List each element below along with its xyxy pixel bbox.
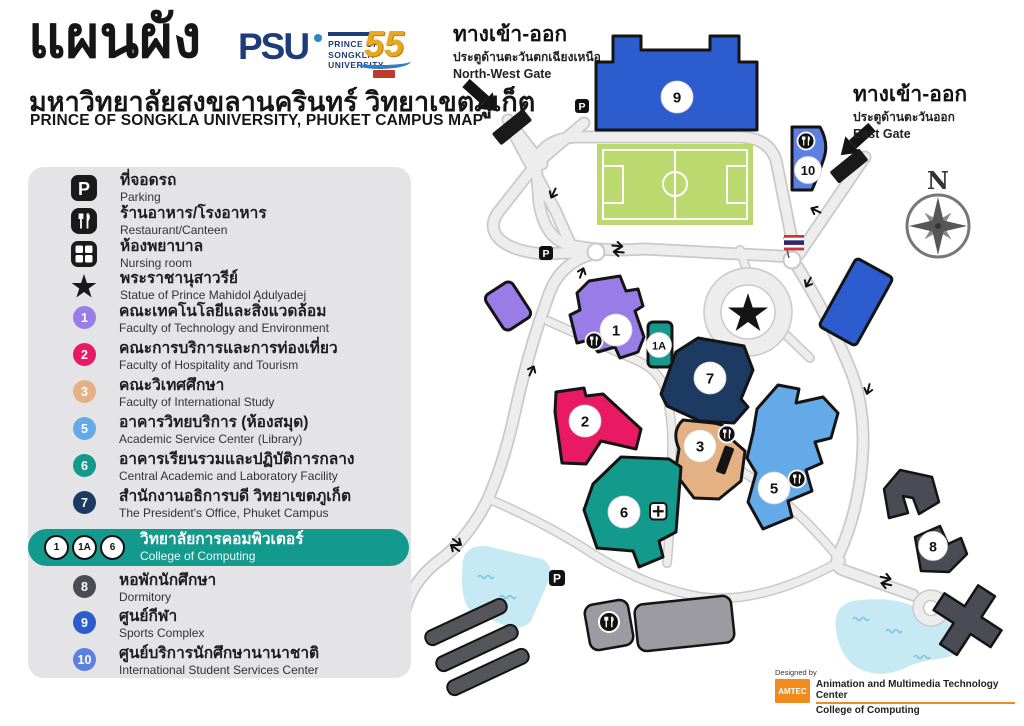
- svg-text:7: 7: [706, 371, 714, 388]
- amtec-logo: AMTEC: [775, 679, 810, 703]
- map-marker-6: 6: [608, 496, 640, 528]
- parking-icon: P: [549, 570, 565, 586]
- restaurant-icon: [789, 471, 806, 488]
- legend-marker-7: 7: [73, 491, 96, 514]
- svg-text:1: 1: [612, 323, 620, 340]
- legend-item-7: 7 สำนักงานอธิการบดี วิทยาเขตภูเก็ตThe Pr…: [28, 491, 351, 520]
- svg-text:6: 6: [620, 505, 628, 522]
- svg-text:P: P: [553, 572, 561, 586]
- nursing-icon: [650, 503, 667, 520]
- restaurant-icon: [586, 333, 603, 350]
- svg-text:1A: 1A: [652, 341, 666, 353]
- map-marker-7: 7: [694, 362, 726, 394]
- legend-item-statue: พระราชานุสาวรีย์Statue of Prince Mahidol…: [28, 273, 306, 302]
- parking-icon: P: [71, 175, 97, 201]
- map-marker-1a: 1A: [647, 333, 672, 358]
- legend-marker-1: 1: [73, 306, 96, 329]
- compass-rose: N: [907, 166, 969, 257]
- football-field: [597, 144, 753, 225]
- subtitle-english: PRINCE OF SONGKLA UNIVERSITY, PHUKET CAM…: [30, 112, 483, 130]
- legend-item-5: 5 อาคารวิทยบริการ (ห้องสมุด)Academic Ser…: [28, 417, 308, 446]
- svg-text:5: 5: [770, 481, 778, 498]
- legend-item-3: 3 คณะวิเทศศึกษาFaculty of International …: [28, 380, 274, 409]
- legend-item-6: 6 อาคารเรียนรวมและปฏิบัติการกลางCentral …: [28, 454, 355, 483]
- page-title: แผนผัง: [28, 6, 201, 70]
- svg-text:P: P: [578, 101, 585, 113]
- legend-marker-6: 6: [73, 454, 96, 477]
- map-marker-2: 2: [569, 405, 601, 437]
- anniversary-55-logo: 55: [352, 28, 416, 78]
- legend-marker-6-highlight: 6: [100, 535, 125, 560]
- legend-item-college-of-computing: 1 1A 6 วิทยาลัยการคอมพิวเตอร์College of …: [28, 529, 409, 566]
- map-marker-10: 10: [795, 157, 822, 184]
- legend-item-8: 8 หอพักนักศึกษาDormitory: [28, 575, 216, 604]
- blue-annex-building: [819, 258, 894, 347]
- restaurant-icon: [719, 426, 736, 443]
- parking-icon: P: [539, 246, 553, 260]
- legend-marker-3: 3: [73, 380, 96, 403]
- svg-text:P: P: [78, 179, 90, 199]
- restaurant-icon: [71, 208, 97, 234]
- legend-item-restaurant: ร้านอาหาร/โรงอาหารRestaurant/Canteen: [28, 208, 267, 237]
- credits: Designed by AMTEC Animation and Multimed…: [775, 668, 1015, 716]
- legend-item-nursing: ห้องพยาบาลNursing room: [28, 241, 203, 270]
- nursing-icon: [71, 241, 97, 267]
- legend-item-parking: P ที่จอดรถParking: [28, 175, 176, 204]
- legend-marker-10: 10: [73, 648, 96, 671]
- svg-text:P: P: [542, 248, 549, 260]
- canteen-building-long: [634, 595, 735, 652]
- credit-line-1: Animation and Multimedia Technology Cent…: [816, 679, 1015, 704]
- legend-item-1: 1 คณะเทคโนโลยีและสิ่งแวดล้อมFaculty of T…: [28, 306, 329, 335]
- svg-text:8: 8: [929, 539, 937, 555]
- star-icon: [71, 273, 97, 299]
- northwest-gate-label: ทางเข้า-ออก ประตูด้านตะวันตกเฉียงเหนือ N…: [453, 24, 663, 81]
- legend-marker-1-highlight: 1: [44, 535, 69, 560]
- map-marker-3: 3: [684, 430, 716, 462]
- legend-marker-8: 8: [73, 575, 96, 598]
- dormitory-building-a: [884, 470, 939, 518]
- legend-panel: P ที่จอดรถParking ร้านอาหาร/โรงอาหารRest…: [28, 167, 411, 678]
- legend-item-2: 2 คณะการบริการและการท่องเที่ยวFaculty of…: [28, 343, 338, 372]
- map-marker-1: 1: [600, 314, 632, 346]
- legend-marker-1a-highlight: 1A: [72, 535, 97, 560]
- east-gate-label: ทางเข้า-ออก ประตูด้านตะวันออก East Gate: [853, 84, 1024, 141]
- svg-text:N: N: [927, 166, 949, 195]
- legend-marker-5: 5: [73, 417, 96, 440]
- parking-icon: P: [575, 99, 589, 113]
- svg-text:2: 2: [581, 414, 589, 431]
- legend-marker-9: 9: [73, 611, 96, 634]
- psu-logo-text: PSU: [238, 30, 308, 63]
- map-marker-8: 8: [919, 532, 948, 561]
- svg-text:9: 9: [673, 90, 681, 107]
- svg-text:10: 10: [801, 163, 815, 178]
- legend-item-10: 10 ศูนย์บริการนักศึกษานานาชาติInternatio…: [28, 648, 319, 677]
- restaurant-icon: [798, 133, 815, 150]
- designed-by-label: Designed by: [775, 668, 1015, 677]
- restaurant-icon: [599, 612, 619, 632]
- map-marker-9: 9: [661, 81, 693, 113]
- map-marker-5: 5: [758, 472, 790, 504]
- svg-text:3: 3: [696, 439, 704, 456]
- psu-logo-dot-icon: [314, 34, 322, 42]
- purple-annex-building: [483, 280, 533, 333]
- credit-line-2: College of Computing: [816, 705, 1015, 716]
- legend-item-9: 9 ศูนย์กีฬาSports Complex: [28, 611, 204, 640]
- anniversary-tag: [373, 70, 395, 78]
- legend-marker-2: 2: [73, 343, 96, 366]
